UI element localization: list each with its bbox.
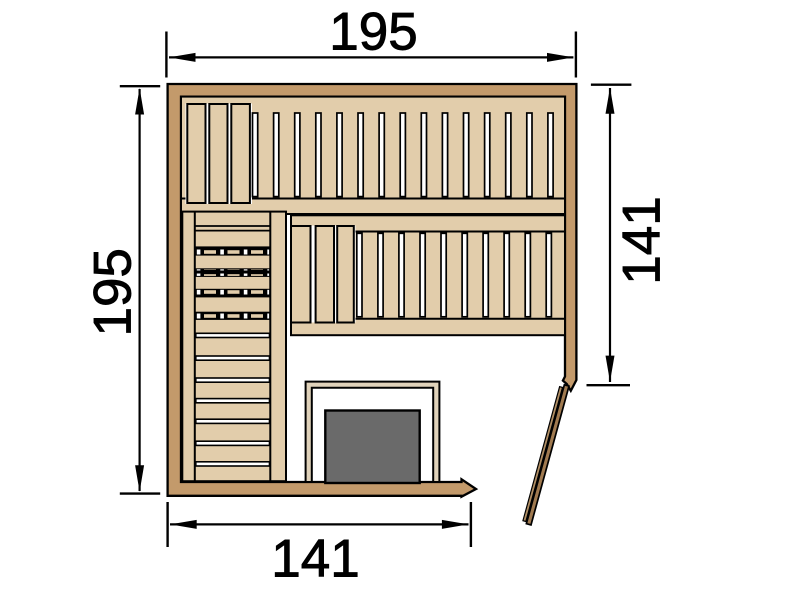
svg-text:195: 195 [329,3,417,62]
svg-text:141: 141 [613,196,672,284]
svg-text:141: 141 [271,530,359,589]
svg-text:195: 195 [84,248,143,336]
